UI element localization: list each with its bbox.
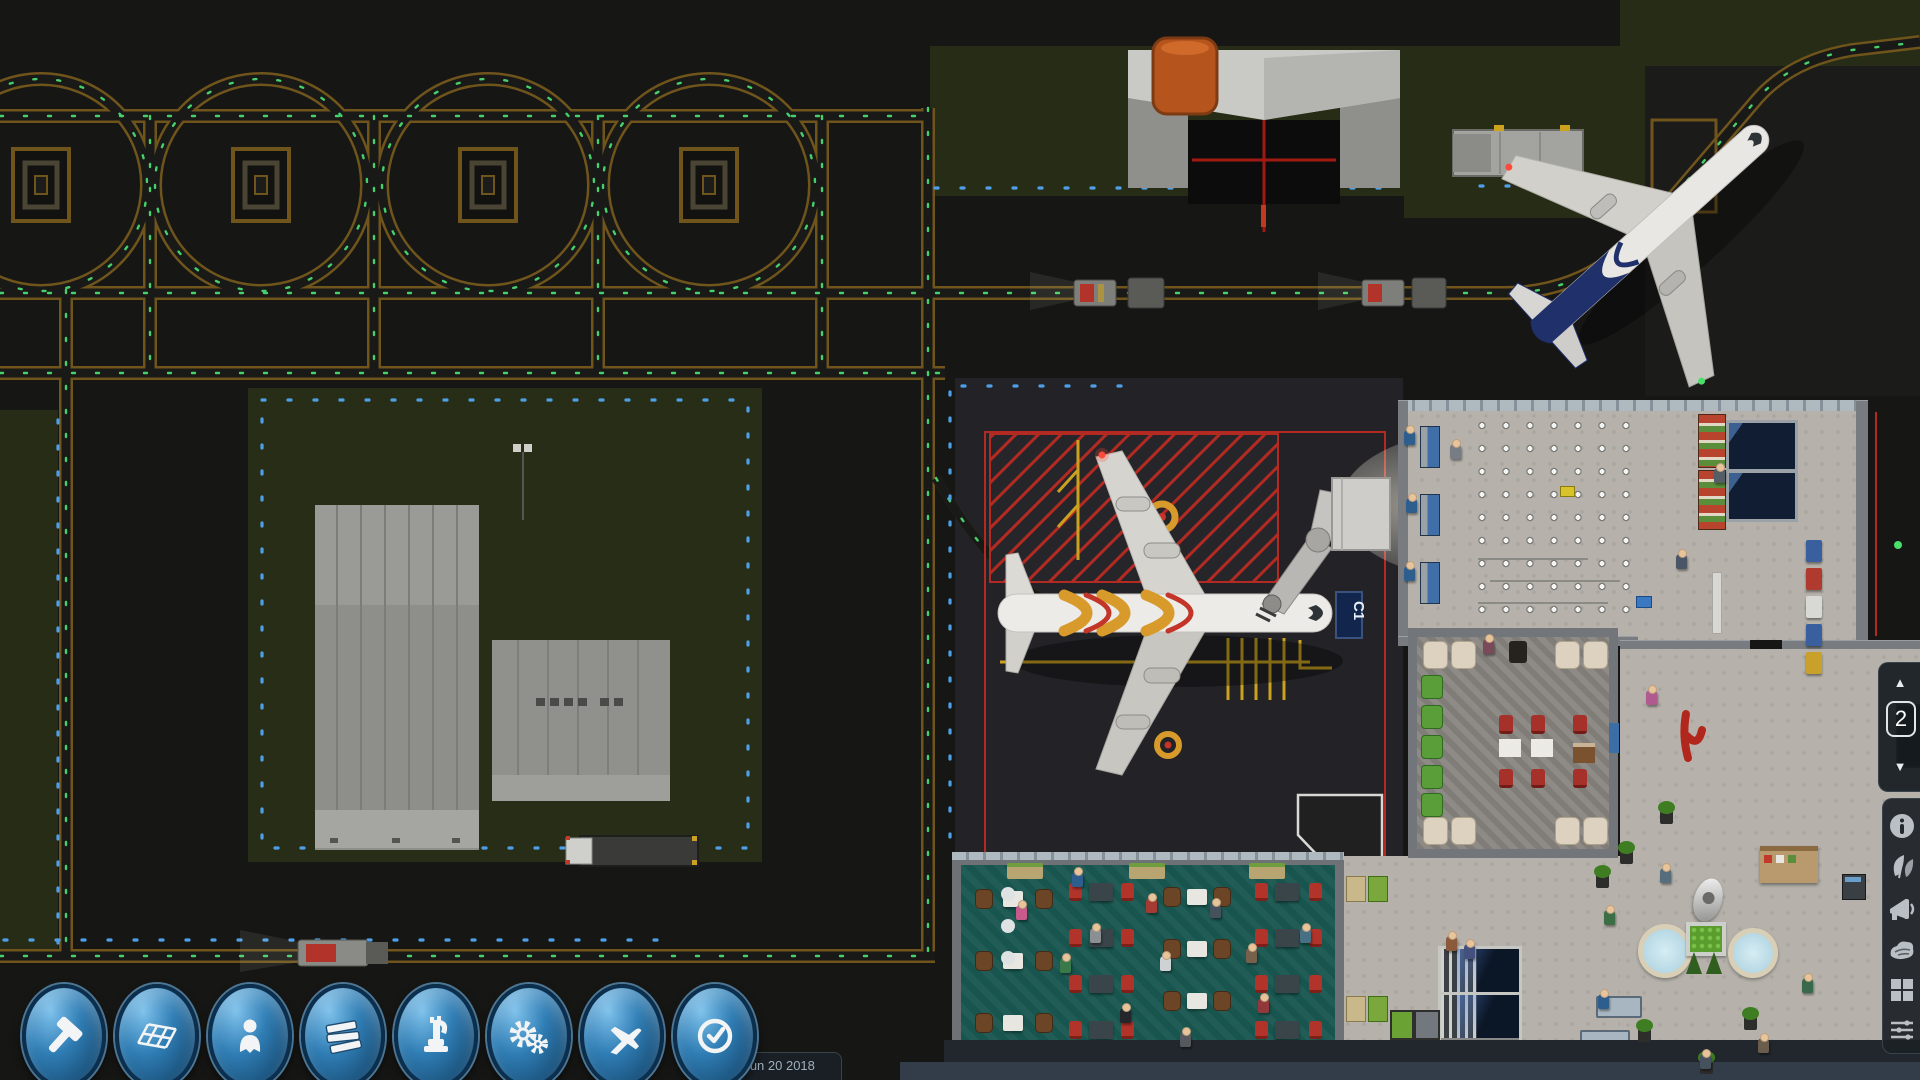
red-chair [1255,1021,1268,1039]
armchair [1423,817,1448,845]
info-icon[interactable] [1887,811,1917,841]
machine-icon [414,1014,458,1058]
airplane-icon [599,1013,645,1059]
food-counter [1249,863,1285,879]
uld-staging-zone [1298,795,1382,858]
food-court-windows [952,852,1344,860]
armchair [1583,641,1608,669]
zones-grid-icon[interactable] [1887,975,1917,1005]
round-table [1001,951,1015,965]
table [1499,739,1521,757]
armchair [1451,641,1476,669]
flight-info-screen [1726,470,1798,522]
dock-truck [566,836,698,866]
person [1120,1008,1131,1023]
queue-stanchions [1470,414,1640,626]
kiosk [1806,568,1822,590]
potted-plant [1744,1014,1757,1030]
person [1180,1032,1191,1047]
fuel-tank [1153,38,1217,114]
armchair [1555,641,1580,669]
armchair [1423,641,1448,669]
red-chair [1309,975,1322,993]
kiosk [1806,596,1822,618]
round-table [1001,919,1015,933]
red-chair [1499,769,1513,788]
warehouse-small [492,640,670,801]
table [1573,743,1595,763]
topiary [1706,952,1722,974]
red-chair [1255,883,1268,901]
green-seat [1421,765,1443,789]
table-dark [1275,883,1299,901]
person [1090,928,1101,943]
armchair [1035,951,1053,971]
red-chair [1121,1021,1134,1039]
flight-info-screen [1726,420,1798,472]
appliance [1842,874,1866,900]
table-dark [1089,975,1113,993]
red-chair [1573,769,1587,788]
materials-button[interactable] [301,984,385,1080]
food-counter [1007,863,1043,879]
bin [1368,876,1388,902]
person [1258,998,1269,1013]
red-chair [1069,929,1082,947]
armchair [1583,817,1608,845]
green-seat [1421,705,1443,729]
red-chair [1309,1021,1322,1039]
person [1758,1038,1769,1053]
queue-sign-blue [1636,596,1652,608]
gate-sign: C1 [1336,592,1367,638]
table [1187,941,1207,957]
table-dark [1089,1021,1113,1039]
potted-plant [1638,1026,1651,1042]
gears-icon [506,1013,552,1059]
person [1060,958,1071,973]
operations-button[interactable] [487,984,571,1080]
person-icon [228,1014,272,1058]
hall-south-wall-b [1620,640,1750,649]
foliage-icon[interactable] [1887,851,1917,881]
clock-icon [693,1014,737,1058]
food-counter [1129,863,1165,879]
floor-level-display: 2 [1886,701,1916,737]
vending-machine [1390,1010,1414,1040]
filters-icon[interactable] [1887,1015,1917,1045]
terminal-east-wall [1856,400,1868,644]
stack-icon [320,1013,366,1059]
queue-rope [1478,602,1608,604]
kiosk [1806,652,1822,674]
red-chair [1531,715,1545,734]
armchair [1213,939,1231,959]
build-button[interactable] [22,984,106,1080]
terrain-icon[interactable] [1887,935,1917,965]
red-chair [1069,975,1082,993]
overlay-panel [1882,798,1920,1054]
person [1464,944,1475,959]
version-date: Jun 20 2018 [743,1058,815,1073]
hedge-planter [1686,922,1726,956]
person [1210,903,1221,918]
person [1802,978,1813,993]
staff-button[interactable] [208,984,292,1080]
checkin-desk [1420,426,1440,468]
armchair [1035,889,1053,909]
hall-south-wall-c [1782,640,1920,649]
person [1676,554,1687,569]
flooring-button[interactable] [115,984,199,1080]
round-table [1001,887,1015,901]
person [1700,1054,1711,1069]
table-dark [1275,1021,1299,1039]
person [1483,639,1494,654]
flights-button[interactable] [580,984,664,1080]
dark-chair [1509,641,1527,663]
fountain [1728,928,1778,978]
person [1406,498,1417,513]
armchair [1163,991,1181,1011]
hammer-icon [42,1014,86,1058]
shop-counter [1760,846,1818,883]
lounge-room [1408,628,1618,858]
table-dark [1275,929,1299,947]
person [1404,430,1415,445]
red-chair [1255,929,1268,947]
red-chair [1121,883,1134,901]
red-chair [1499,715,1513,734]
south-facade [900,1062,1920,1080]
red-chair [1309,883,1322,901]
person [1246,948,1257,963]
table-dark [1089,883,1113,901]
armchair [1213,991,1231,1011]
red-statue [1672,706,1722,776]
person [1146,898,1157,913]
south-wall [944,1040,1920,1064]
person [1598,994,1609,1009]
armchair [1035,1013,1053,1033]
potted-plant [1620,848,1633,864]
queue-sign-yellow [1560,486,1575,497]
schedule-button[interactable] [673,984,757,1080]
vending-machine [1414,1010,1440,1040]
potted-plant [1596,872,1609,888]
armchair [1163,887,1181,907]
floor-down-button[interactable]: ▼ [1879,759,1920,774]
escalators [1438,946,1522,1044]
kiosk [1806,540,1822,562]
person [1300,928,1311,943]
person [1646,690,1657,705]
person [1660,868,1671,883]
pillar [1712,572,1722,634]
armchair [975,1013,993,1033]
floor-up-button[interactable]: ▲ [1879,675,1920,690]
warehouse-large [315,505,479,850]
red-chair [1121,975,1134,993]
armchair [975,951,993,971]
table [1531,739,1553,757]
person [1016,905,1027,920]
armchair [1555,817,1580,845]
terminal-north-wall [1398,400,1868,411]
red-chair [1255,975,1268,993]
person [1604,910,1615,925]
bin [1346,996,1366,1022]
potted-plant [1660,808,1673,824]
red-chair [1121,929,1134,947]
person [1072,872,1083,887]
red-chair [1531,769,1545,788]
person [1450,444,1461,459]
armchair [975,889,993,909]
topiary [1686,952,1702,974]
person [1714,468,1725,483]
queue-rope [1490,580,1620,582]
person [1404,566,1415,581]
red-chair [1573,715,1587,734]
gate-sign-label: C1 [1350,601,1367,620]
game-viewport: C1 [0,0,1920,1080]
armchair [1451,817,1476,845]
concession-cart [1698,414,1726,468]
floor-grid-icon [134,1013,180,1059]
equipment-button[interactable] [394,984,478,1080]
person [1160,956,1171,971]
green-seat [1421,675,1443,699]
green-seat [1421,793,1443,817]
person [1446,936,1457,951]
green-seat [1421,735,1443,759]
table [1187,889,1207,905]
table-dark [1275,975,1299,993]
bin [1346,876,1366,902]
queue-rope [1478,558,1588,560]
kiosk [1806,624,1822,646]
megaphone-icon[interactable] [1887,893,1917,923]
table [1187,993,1207,1009]
floor-selector: ▲ 2 ▼ [1878,662,1920,792]
red-chair [1069,1021,1082,1039]
fountain [1638,924,1692,978]
lounge-door [1609,723,1619,753]
table [1003,1015,1023,1031]
bin [1368,996,1388,1022]
checkin-desk [1420,494,1440,536]
checkin-desk [1420,562,1440,604]
